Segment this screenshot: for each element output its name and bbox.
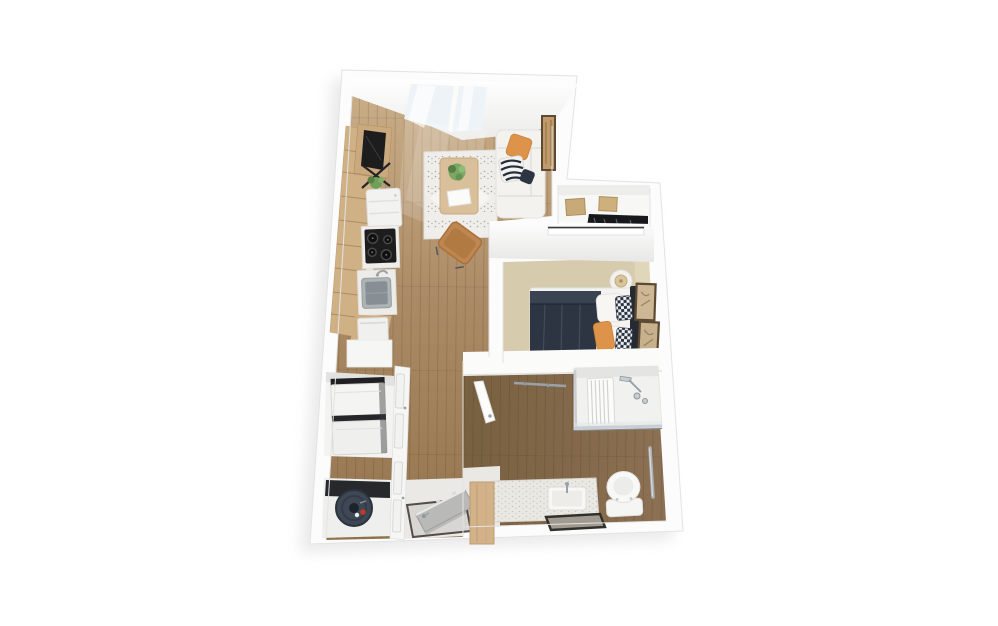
stacked-washer-dryer <box>331 377 388 455</box>
white-book <box>447 189 471 207</box>
cooktop <box>361 225 399 268</box>
shower-bench <box>587 378 615 427</box>
storage-box-2 <box>599 197 618 212</box>
bedroom-sliding-door <box>548 227 644 235</box>
utility-closet <box>322 478 392 538</box>
walk-in-shower <box>574 366 662 431</box>
coffee-table <box>440 158 478 214</box>
toilet <box>605 471 643 517</box>
closet-shelf-shadow <box>558 185 650 195</box>
leaning-picture-frames <box>635 284 659 359</box>
counter-end-panel <box>347 340 392 367</box>
laundry-closet <box>324 372 394 458</box>
wood-side-panel <box>470 482 494 544</box>
checkered-pillow-1 <box>615 295 633 320</box>
water-heater <box>336 490 372 526</box>
leaning-mirror <box>546 514 605 530</box>
floor-plan-render <box>0 0 998 626</box>
storage-box-1 <box>565 198 585 215</box>
heater-valve <box>360 509 366 515</box>
floor-plan-canvas <box>0 0 998 626</box>
sofa <box>496 130 545 218</box>
wall-art <box>542 116 555 170</box>
refrigerator <box>366 188 402 228</box>
wall-tv <box>361 130 386 170</box>
kitchen-sink <box>357 269 397 315</box>
